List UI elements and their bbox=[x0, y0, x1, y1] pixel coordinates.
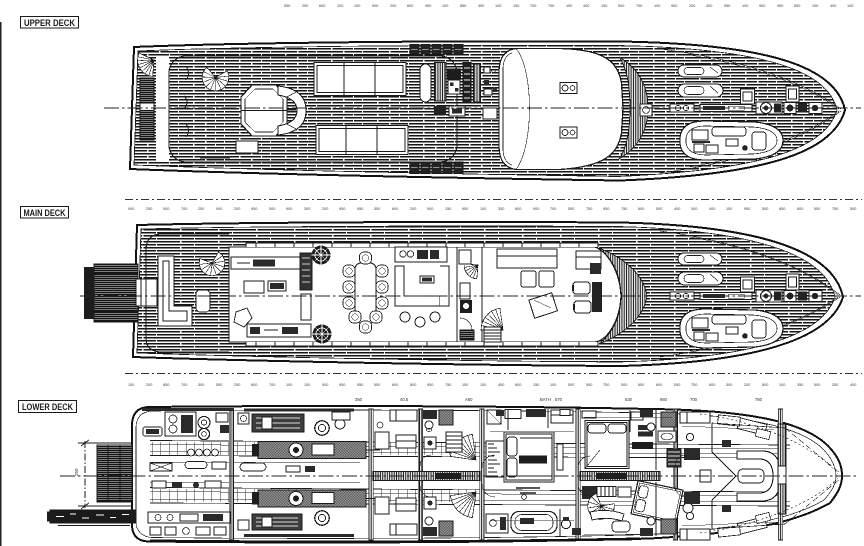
svg-text:750: 750 bbox=[691, 383, 697, 387]
svg-text:750: 750 bbox=[603, 383, 609, 387]
svg-text:600: 600 bbox=[392, 383, 398, 387]
svg-text:200: 200 bbox=[146, 383, 152, 387]
svg-text:150: 150 bbox=[354, 4, 360, 8]
svg-text:900: 900 bbox=[216, 207, 222, 211]
svg-text:150: 150 bbox=[513, 4, 519, 8]
svg-text:950: 950 bbox=[251, 207, 257, 211]
svg-text:630: 630 bbox=[625, 397, 633, 402]
svg-text:850: 850 bbox=[163, 383, 169, 387]
svg-text:850: 850 bbox=[779, 207, 785, 211]
svg-text:700: 700 bbox=[530, 4, 536, 8]
svg-text:200: 200 bbox=[234, 207, 240, 211]
svg-text:500: 500 bbox=[850, 207, 856, 211]
svg-text:150: 150 bbox=[601, 4, 607, 8]
svg-text:650: 650 bbox=[794, 4, 800, 8]
svg-text:850: 850 bbox=[460, 4, 466, 8]
svg-text:250: 250 bbox=[234, 383, 240, 387]
svg-text:250: 250 bbox=[302, 4, 308, 8]
svg-text:500: 500 bbox=[762, 207, 768, 211]
svg-text:250: 250 bbox=[832, 383, 838, 387]
svg-text:MAIN DECK: MAIN DECK bbox=[24, 208, 66, 218]
svg-text:300: 300 bbox=[726, 383, 732, 387]
svg-text:950: 950 bbox=[603, 207, 609, 211]
svg-text:300: 300 bbox=[304, 207, 310, 211]
svg-text:950: 950 bbox=[744, 207, 750, 211]
svg-text:950: 950 bbox=[425, 4, 431, 8]
svg-text:100: 100 bbox=[847, 4, 853, 8]
svg-text:500: 500 bbox=[269, 207, 275, 211]
svg-text:400: 400 bbox=[850, 383, 856, 387]
svg-text:200: 200 bbox=[390, 4, 396, 8]
svg-text:400: 400 bbox=[830, 4, 836, 8]
svg-text:LOWER DECK: LOWER DECK bbox=[22, 402, 73, 412]
svg-text:40.5: 40.5 bbox=[400, 397, 409, 402]
svg-text:750: 750 bbox=[586, 207, 592, 211]
svg-text:200: 200 bbox=[689, 4, 695, 8]
svg-text:150: 150 bbox=[445, 207, 451, 211]
svg-text:300: 300 bbox=[691, 207, 697, 211]
svg-text:750: 750 bbox=[445, 383, 451, 387]
svg-text:A60: A60 bbox=[465, 397, 473, 402]
svg-text:350: 350 bbox=[797, 383, 803, 387]
svg-text:750: 750 bbox=[832, 207, 838, 211]
svg-text:950: 950 bbox=[427, 383, 433, 387]
svg-text:700: 700 bbox=[181, 383, 187, 387]
svg-text:300: 300 bbox=[198, 383, 204, 387]
svg-text:700: 700 bbox=[548, 4, 554, 8]
svg-text:550: 550 bbox=[374, 383, 380, 387]
svg-text:200: 200 bbox=[744, 383, 750, 387]
svg-text:400: 400 bbox=[674, 207, 680, 211]
svg-text:550: 550 bbox=[814, 207, 820, 211]
svg-text:900: 900 bbox=[618, 4, 624, 8]
svg-text:550: 550 bbox=[357, 383, 363, 387]
svg-text:250: 250 bbox=[146, 207, 152, 211]
svg-text:100: 100 bbox=[654, 4, 660, 8]
svg-text:400: 400 bbox=[706, 4, 712, 8]
svg-text:350: 350 bbox=[498, 207, 504, 211]
svg-text:250: 250 bbox=[74, 468, 79, 476]
svg-text:600: 600 bbox=[709, 383, 715, 387]
svg-text:950: 950 bbox=[777, 4, 783, 8]
svg-text:650: 650 bbox=[638, 383, 644, 387]
svg-text:150: 150 bbox=[304, 383, 310, 387]
svg-text:950: 950 bbox=[462, 207, 468, 211]
svg-text:570: 570 bbox=[555, 397, 563, 402]
svg-text:950: 950 bbox=[586, 383, 592, 387]
svg-text:900: 900 bbox=[286, 207, 292, 211]
svg-text:760: 760 bbox=[755, 397, 763, 402]
svg-text:400: 400 bbox=[709, 207, 715, 211]
svg-text:650: 650 bbox=[319, 4, 325, 8]
svg-text:900: 900 bbox=[533, 207, 539, 211]
svg-text:900: 900 bbox=[322, 383, 328, 387]
svg-text:350: 350 bbox=[355, 397, 363, 402]
svg-text:550: 550 bbox=[216, 383, 222, 387]
svg-text:200: 200 bbox=[322, 207, 328, 211]
svg-text:800: 800 bbox=[410, 383, 416, 387]
svg-text:950: 950 bbox=[339, 383, 345, 387]
svg-text:250: 250 bbox=[198, 207, 204, 211]
svg-text:150: 150 bbox=[533, 383, 539, 387]
svg-text:100: 100 bbox=[337, 4, 343, 8]
svg-text:950: 950 bbox=[724, 4, 730, 8]
svg-text:350: 350 bbox=[374, 207, 380, 211]
svg-text:800: 800 bbox=[762, 383, 768, 387]
svg-text:600: 600 bbox=[656, 383, 662, 387]
svg-text:600: 600 bbox=[407, 4, 413, 8]
svg-text:950: 950 bbox=[671, 4, 677, 8]
svg-text:700: 700 bbox=[550, 207, 556, 211]
svg-text:550: 550 bbox=[284, 4, 290, 8]
svg-text:500: 500 bbox=[163, 207, 169, 211]
svg-text:800: 800 bbox=[251, 383, 257, 387]
svg-text:100: 100 bbox=[742, 4, 748, 8]
svg-text:800: 800 bbox=[515, 383, 521, 387]
svg-text:150: 150 bbox=[462, 383, 468, 387]
svg-text:550: 550 bbox=[568, 207, 574, 211]
svg-text:350: 350 bbox=[478, 4, 484, 8]
svg-text:100: 100 bbox=[812, 4, 818, 8]
svg-text:500: 500 bbox=[814, 383, 820, 387]
svg-text:800: 800 bbox=[797, 207, 803, 211]
svg-text:100: 100 bbox=[550, 383, 556, 387]
svg-text:050: 050 bbox=[674, 383, 680, 387]
svg-text:BATH: BATH bbox=[540, 397, 551, 402]
svg-text:600: 600 bbox=[638, 207, 644, 211]
svg-text:900: 900 bbox=[427, 207, 433, 211]
svg-text:950: 950 bbox=[339, 207, 345, 211]
svg-text:400: 400 bbox=[583, 4, 589, 8]
svg-text:100: 100 bbox=[286, 383, 292, 387]
svg-text:660: 660 bbox=[660, 397, 668, 402]
svg-text:900: 900 bbox=[128, 207, 134, 211]
svg-text:700: 700 bbox=[690, 397, 698, 402]
svg-text:500: 500 bbox=[568, 383, 574, 387]
svg-text:950: 950 bbox=[759, 4, 765, 8]
svg-text:150: 150 bbox=[480, 383, 486, 387]
svg-text:700: 700 bbox=[269, 383, 275, 387]
svg-text:100: 100 bbox=[495, 4, 501, 8]
svg-text:900: 900 bbox=[372, 4, 378, 8]
svg-text:500: 500 bbox=[621, 383, 627, 387]
svg-text:800: 800 bbox=[515, 207, 521, 211]
svg-text:100: 100 bbox=[442, 4, 448, 8]
svg-text:700: 700 bbox=[636, 4, 642, 8]
svg-text:150: 150 bbox=[128, 383, 134, 387]
svg-text:150: 150 bbox=[566, 4, 572, 8]
svg-text:100: 100 bbox=[480, 207, 486, 211]
svg-text:200: 200 bbox=[410, 207, 416, 211]
svg-text:750: 750 bbox=[621, 207, 627, 211]
svg-text:100: 100 bbox=[779, 383, 785, 387]
svg-text:950: 950 bbox=[357, 207, 363, 211]
svg-text:500: 500 bbox=[656, 207, 662, 211]
svg-text:450: 450 bbox=[498, 383, 504, 387]
svg-text:600: 600 bbox=[392, 207, 398, 211]
svg-text:150: 150 bbox=[726, 207, 732, 211]
svg-text:700: 700 bbox=[181, 207, 187, 211]
svg-text:UPPER DECK: UPPER DECK bbox=[24, 18, 75, 28]
